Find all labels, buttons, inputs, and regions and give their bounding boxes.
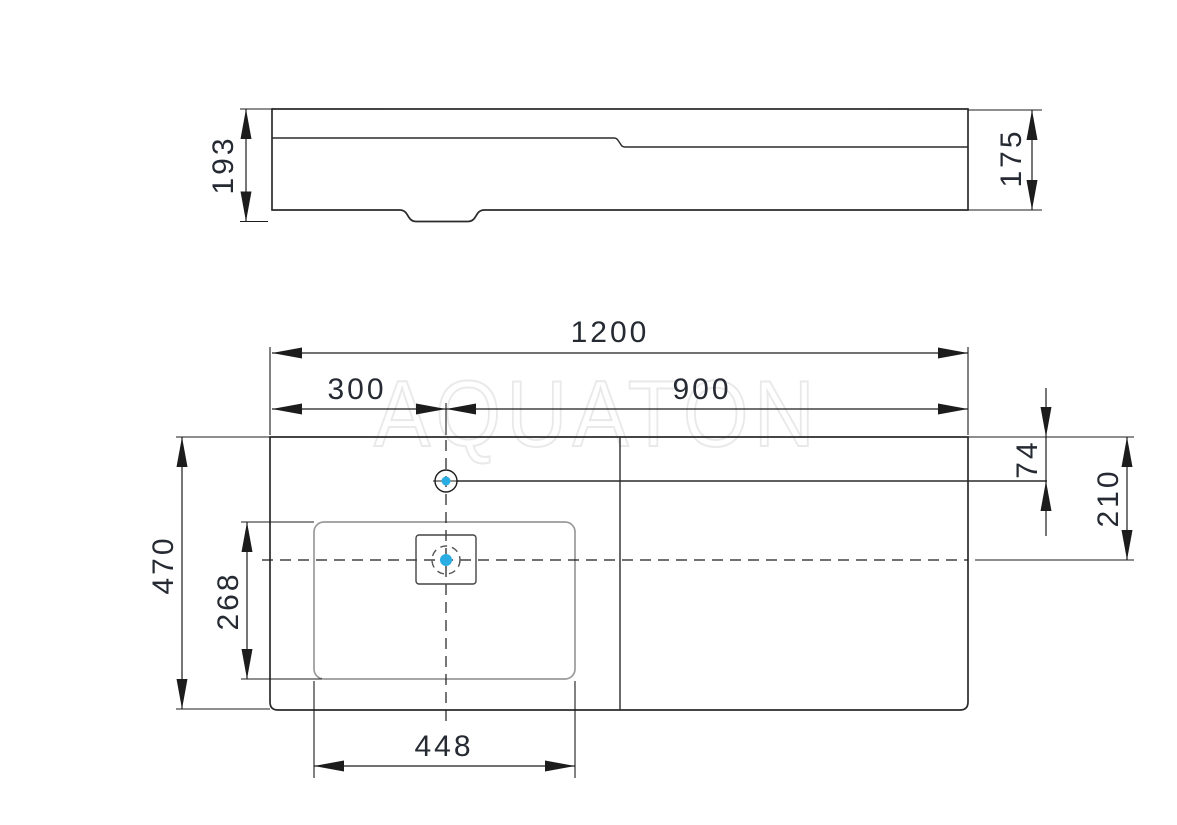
drain-marker-dot: [440, 554, 452, 566]
right-section-height-label: 175: [995, 128, 1028, 187]
overall-width-label: 1200: [571, 316, 650, 349]
side-view-bottom-edge-with-basin-bulge: [272, 210, 968, 222]
side-view-surface-step-line: [272, 138, 968, 147]
faucet-offset-label: 74: [1011, 439, 1044, 478]
dim-overall-height: [240, 109, 274, 222]
dim-basin-depth: [241, 522, 322, 679]
side-view: [272, 109, 968, 222]
faucet-hole: [433, 470, 459, 492]
plan-view: [262, 437, 1047, 726]
basin-depth-label: 268: [212, 571, 245, 630]
brand-watermark: AQUATON: [374, 361, 820, 466]
basin-center-offset-label: 210: [1092, 468, 1125, 527]
basin-width-label: 448: [414, 730, 473, 763]
basin-center-to-right-label: 900: [672, 373, 731, 406]
overall-height-label: 193: [207, 135, 240, 194]
faucet-hole-marker-dot: [442, 477, 451, 486]
overall-depth-label: 470: [147, 535, 180, 594]
drawing-sheet: AQUATON: [0, 0, 1177, 825]
basin-center-from-left-label: 300: [327, 373, 386, 406]
countertop-outline: [270, 437, 968, 710]
